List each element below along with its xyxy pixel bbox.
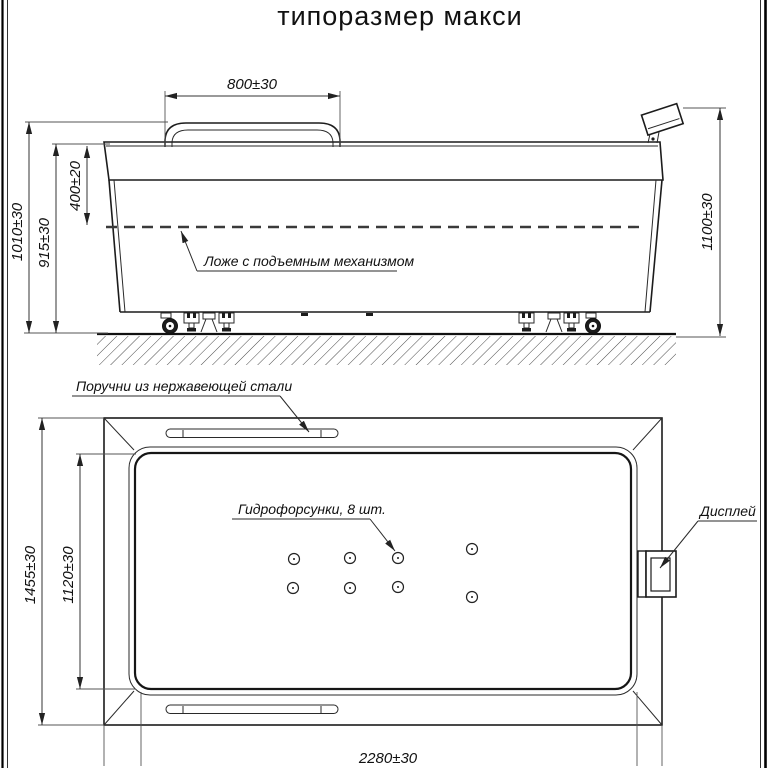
top-view: Поручни из нержавеющей стали Гидрофорсун… <box>22 378 757 767</box>
dim-width-inner: 1120±30 <box>60 454 136 689</box>
dim-length: 2280±30 <box>104 692 662 767</box>
jet-icon <box>345 553 356 564</box>
side-view: 800±30 1010±30 915±30 400±20 1100±30 <box>9 76 726 365</box>
display-icon-plan <box>638 551 676 597</box>
jet-icon <box>288 583 299 594</box>
corner-miters <box>104 418 662 725</box>
jet-icon <box>467 544 478 555</box>
tub-rim <box>104 142 663 180</box>
dim-1010-label: 1010±30 <box>9 202 26 261</box>
jet-icon <box>345 583 356 594</box>
display-icon-side <box>641 104 683 143</box>
jet-icon <box>393 553 404 564</box>
ground-hatch <box>97 334 676 365</box>
label-handrails: Поручни из нержавеющей стали <box>72 378 309 432</box>
tub-outline-plan <box>104 418 662 725</box>
jets <box>288 544 478 603</box>
page-title: типоразмер макси <box>277 1 523 31</box>
label-bed: Ложе с подъемным механизмом <box>181 231 415 271</box>
jet-icon <box>467 592 478 603</box>
label-jets-text: Гидрофорсунки, 8 шт. <box>238 501 386 517</box>
tub-body <box>109 180 662 316</box>
dim-800-label: 800±30 <box>227 76 278 93</box>
dim-1455-label: 1455±30 <box>22 545 39 604</box>
feet-left <box>161 313 234 334</box>
jet-icon <box>289 554 300 565</box>
dim-handrail-length: 800±30 <box>165 76 340 147</box>
dim-915-label: 915±30 <box>36 217 53 268</box>
drawing-svg: типоразмер макси <box>0 0 768 768</box>
handrail-plan-bottom <box>166 705 338 714</box>
label-bed-text: Ложе с подъемным механизмом <box>203 253 415 269</box>
dim-2280-label: 2280±30 <box>358 750 418 767</box>
label-display-text: Дисплей <box>698 503 756 519</box>
label-jets: Гидрофорсунки, 8 шт. <box>232 501 395 551</box>
dim-height-display: 1100±30 <box>676 108 726 337</box>
label-handrails-text: Поручни из нержавеющей стали <box>76 378 292 394</box>
dim-depth: 400±20 <box>67 146 87 225</box>
jet-icon <box>393 582 404 593</box>
dim-1100-label: 1100±30 <box>699 193 716 251</box>
technical-drawing: типоразмер макси <box>0 0 768 768</box>
handrail-side <box>165 123 340 147</box>
handrail-plan-top <box>166 429 338 438</box>
dim-400-label: 400±20 <box>67 160 84 211</box>
dim-1120-label: 1120±30 <box>60 546 77 604</box>
feet-right <box>519 313 601 334</box>
basin-rim <box>129 447 637 695</box>
